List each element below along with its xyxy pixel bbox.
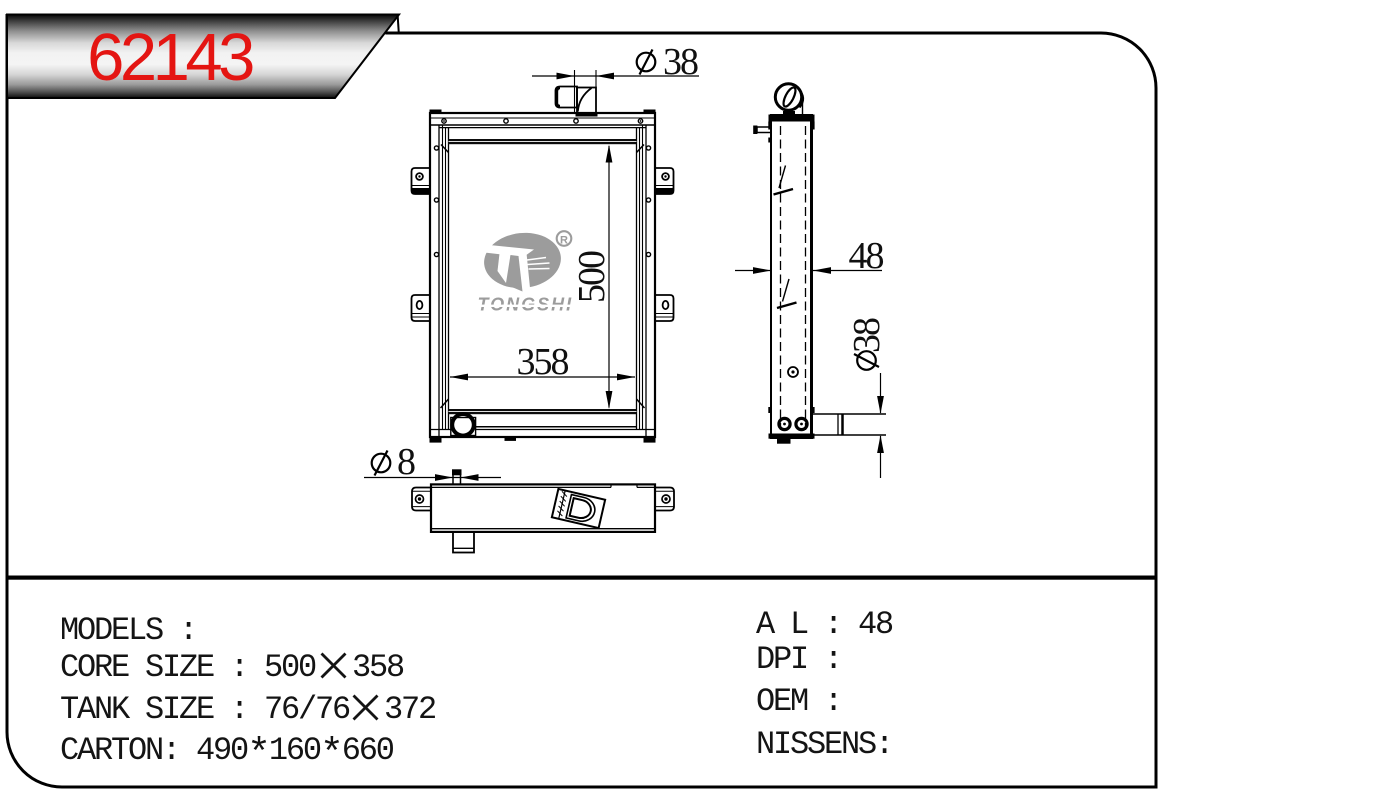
svg-text:A L : 48: A L : 48 xyxy=(756,606,893,643)
svg-text:DPI :: DPI : xyxy=(756,641,841,678)
svg-text:358: 358 xyxy=(517,341,569,383)
svg-text:CARTON: 490*160*660: CARTON: 490*160*660 xyxy=(60,732,394,778)
svg-text:MODELS :: MODELS : xyxy=(60,612,196,649)
svg-text:372: 372 xyxy=(384,691,435,728)
svg-text:62143: 62143 xyxy=(87,20,253,95)
svg-text:48: 48 xyxy=(849,235,884,277)
svg-text:OEM :: OEM : xyxy=(756,683,841,720)
svg-text:R: R xyxy=(560,235,568,247)
svg-text:TANK SIZE : 76/76: TANK SIZE : 76/76 xyxy=(60,691,350,728)
svg-text:TONGSHI: TONGSHI xyxy=(478,295,574,315)
svg-text:8: 8 xyxy=(397,441,415,483)
svg-text:38: 38 xyxy=(663,41,698,83)
svg-text:500: 500 xyxy=(571,251,613,303)
svg-text:NISSENS:: NISSENS: xyxy=(756,726,892,763)
svg-text:358: 358 xyxy=(352,649,404,686)
svg-text:38: 38 xyxy=(846,318,888,353)
svg-text:CORE SIZE : 500: CORE SIZE : 500 xyxy=(60,649,316,686)
